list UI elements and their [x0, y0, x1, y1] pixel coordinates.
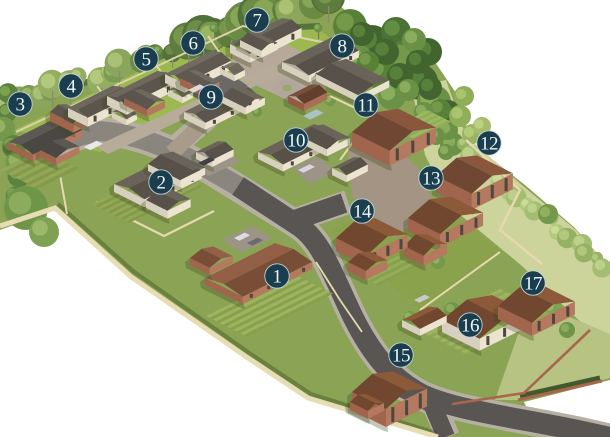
svg-text:16: 16: [461, 315, 479, 336]
svg-text:14: 14: [353, 201, 372, 222]
svg-text:2: 2: [157, 172, 166, 193]
svg-text:1: 1: [273, 266, 282, 287]
svg-text:11: 11: [357, 95, 374, 116]
svg-text:15: 15: [392, 345, 410, 366]
svg-text:7: 7: [253, 10, 262, 31]
svg-text:8: 8: [338, 36, 347, 57]
svg-text:13: 13: [422, 168, 440, 189]
svg-text:3: 3: [16, 94, 25, 115]
svg-text:4: 4: [67, 76, 77, 97]
svg-text:5: 5: [142, 49, 151, 70]
svg-text:12: 12: [480, 133, 498, 154]
svg-text:10: 10: [287, 130, 305, 151]
svg-text:6: 6: [189, 33, 198, 54]
svg-text:17: 17: [524, 273, 542, 294]
svg-text:9: 9: [207, 87, 216, 108]
